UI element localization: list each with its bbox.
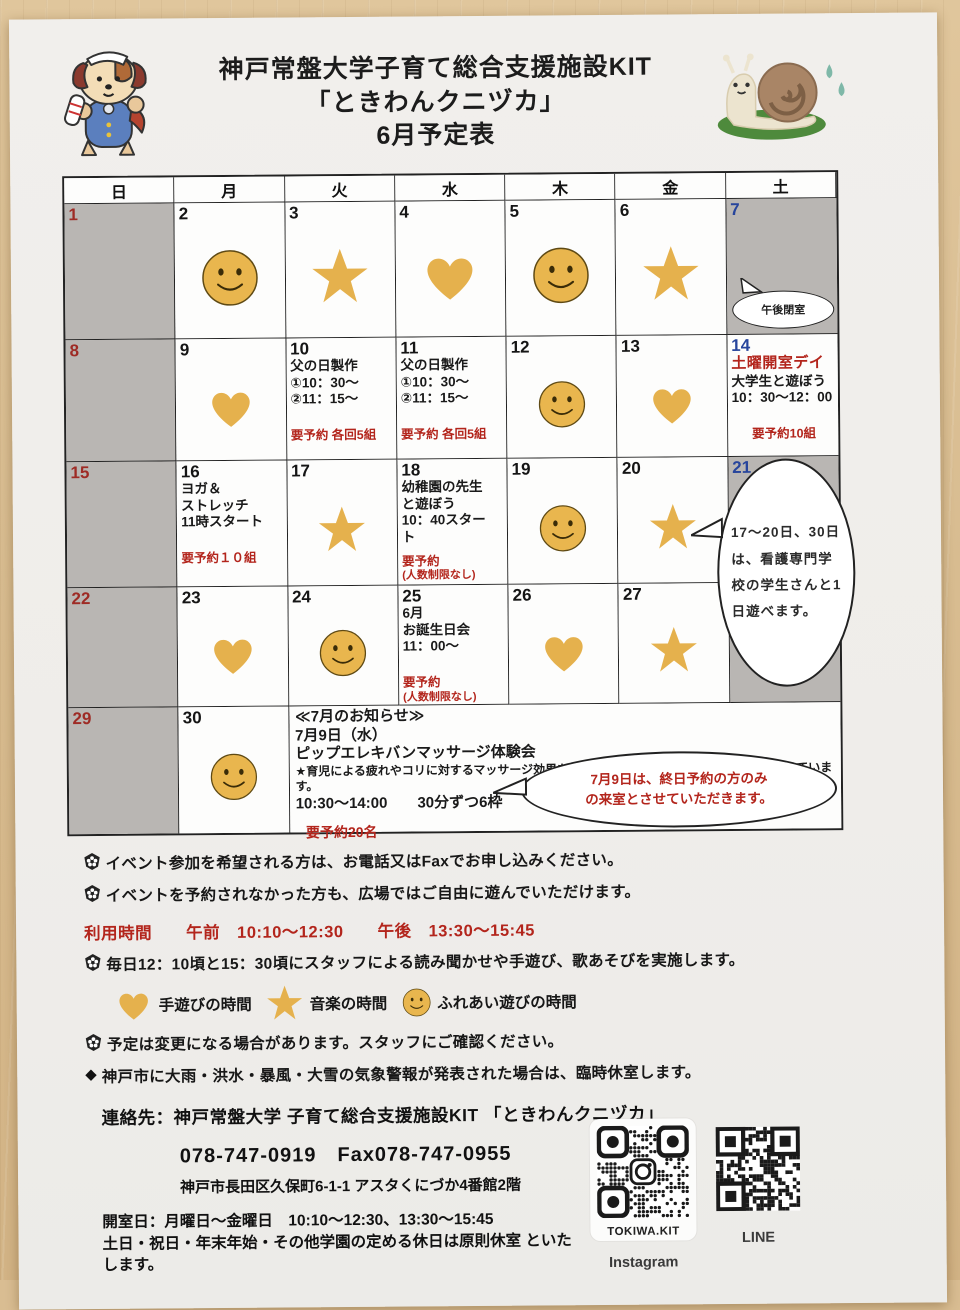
nursing-students-note-bubble: 17～20日、30日は、看護専門学校の学生さんと1日遊べます。 xyxy=(716,458,856,687)
day-number: 30 xyxy=(179,706,288,727)
note-row: 予定は変更になる場合があります。スタッフにご確認ください。 xyxy=(85,1027,915,1057)
icon-legend: 手遊びの時間音楽の時間ふれあい遊びの時間 xyxy=(115,980,915,1024)
calendar-cell-16: 16ヨガ＆ストレッチ11時スタート要予約１０組 xyxy=(177,460,288,587)
day-number: 15 xyxy=(66,461,175,482)
day-number: 9 xyxy=(176,339,285,360)
event-line: ①10：30～ xyxy=(401,374,504,392)
event-line: 要予約 xyxy=(403,675,506,691)
page-title: 神戸常盤大学子育て総合支援施設KIT 「ときわんクニヅカ」 6月予定表 xyxy=(161,50,710,156)
contact-section: 連絡先：神戸常盤大学 子育て総合支援施設KIT 「ときわんクニヅカ」 078-7… xyxy=(101,1098,932,1276)
day-number: 7 xyxy=(726,198,836,219)
activity-icon-box xyxy=(178,606,288,700)
activity-icon-box xyxy=(619,603,729,697)
event-line: 父の日製作 xyxy=(290,358,393,376)
event-text: 6月お誕生日会11：00～要予約(人数制限なし) xyxy=(398,605,508,705)
heart-icon xyxy=(420,249,480,302)
legend-label: 音楽の時間 xyxy=(310,992,388,1015)
nursing-students-note-text: 17～20日、30日は、看護専門学校の学生さんと1日遊べます。 xyxy=(731,520,842,626)
smiley-icon xyxy=(200,247,260,307)
event-line: ②11：15～ xyxy=(290,391,393,409)
weekday-header-木: 木 xyxy=(505,174,615,201)
event-line: ヨガ＆ xyxy=(181,481,284,499)
day-number: 6 xyxy=(616,199,725,220)
day-number: 17 xyxy=(287,460,396,481)
event-line: (人数制限なし) xyxy=(403,690,506,704)
event-line: 要予約１０組 xyxy=(181,551,284,567)
event-line: 6月 xyxy=(402,605,505,623)
page-title-line2: 「ときわんクニヅカ」 xyxy=(161,84,709,122)
smiley-icon xyxy=(531,245,591,305)
july-reservation-bubble: 7月9日は、終日予約の方のみの来室とさせていただきます。 xyxy=(521,750,838,828)
calendar-cell-18: 18幼稚園の先生と遊ぼう10：40スタート要予約(人数制限なし) xyxy=(397,459,508,586)
event-line: 大学生と遊ぼう xyxy=(731,373,835,391)
contact-open-days: 開室日：月曜日～金曜日 10:10～12:30、13:30～15:45 xyxy=(102,1203,932,1232)
smiley-icon xyxy=(401,987,431,1017)
note-text: イベント参加を希望される方は、お電話又はFaxでお申し込みください。 xyxy=(105,848,623,874)
calendar-cell-27: 27 xyxy=(619,583,730,704)
event-line: 要予約 各回5組 xyxy=(291,428,394,444)
contact-name: 連絡先：神戸常盤大学 子育て総合支援施設KIT 「ときわんクニヅカ」 xyxy=(101,1098,931,1130)
calendar-cell-5: 5 xyxy=(506,200,617,337)
line-qr-code xyxy=(716,1126,801,1216)
calendar-cell-11: 11父の日製作①10：30～②11：15～要予約 各回5組 xyxy=(396,337,507,460)
opening-hours-line: 利用時間 午前 10:10～12:30 午後 13:30～15:45 xyxy=(84,914,914,945)
page-title-line1: 神戸常盤大学子育て総合支援施設KIT xyxy=(161,50,709,88)
day-number: 3 xyxy=(285,202,394,223)
note-text: 予定は変更になる場合があります。スタッフにご確認ください。 xyxy=(107,1029,564,1055)
calendar-cell-9: 9 xyxy=(176,338,287,461)
activity-icon-box xyxy=(506,220,616,330)
day-number: 5 xyxy=(506,200,615,221)
note-text: 毎日12：10頃と15：30頃にスタッフによる読み聞かせや手遊び、歌あそびを実施… xyxy=(106,948,744,975)
qr-zone: TOKIWA.KIT Instagram LINE xyxy=(590,1117,801,1271)
paper-sheet: 神戸常盤大学子育て総合支援施設KIT 「ときわんクニヅカ」 6月予定表 xyxy=(9,12,947,1309)
day-number: 18 xyxy=(397,459,506,480)
july-announcement-cell: ≪7月のお知らせ≫7月9日（水）ピップエレキバンマッサージ体験会★育児による疲れ… xyxy=(289,702,841,832)
event-text: 幼稚園の先生と遊ぼう10：40スタート要予約(人数制限なし) xyxy=(397,479,507,584)
june-calendar-grid: 日月火水木金土1234567午後閉室 8910父の日製作①10：30～②11：1… xyxy=(62,170,843,836)
day-number: 22 xyxy=(67,587,176,608)
day-number: 11 xyxy=(396,337,505,358)
instagram-account-label: TOKIWA.KIT xyxy=(597,1225,689,1238)
day-number: 1 xyxy=(64,203,173,224)
calendar-cell-19: 19 xyxy=(508,458,619,585)
event-line: ②11：15～ xyxy=(401,390,504,408)
afternoon-closed-text: 午後閉室 xyxy=(761,301,805,317)
heart-icon xyxy=(115,988,153,1022)
flower-badge-icon xyxy=(84,884,106,907)
smiley-icon xyxy=(318,627,368,677)
weekday-header-土: 土 xyxy=(726,172,836,199)
instagram-label: Instagram xyxy=(591,1254,697,1271)
day-number: 10 xyxy=(286,338,395,359)
note-row: 毎日12：10頃と15：30頃にスタッフによる読み聞かせや手遊び、歌あそびを実施… xyxy=(84,947,914,977)
smiley-icon xyxy=(209,752,259,802)
activity-icon-box xyxy=(617,355,727,451)
event-line: お誕生日会 xyxy=(403,622,506,640)
activity-icon-box xyxy=(508,478,618,578)
day-number: 8 xyxy=(65,339,174,360)
weekday-header-火: 火 xyxy=(285,176,395,203)
event-line: 要予約 各回5組 xyxy=(401,427,504,443)
activity-icon-box xyxy=(285,222,395,332)
day-number: 19 xyxy=(508,458,617,479)
bubble-tail xyxy=(493,777,527,797)
calendar-cell-12: 12 xyxy=(507,336,618,459)
smiley-icon xyxy=(538,503,588,553)
weekday-header-水: 水 xyxy=(395,175,505,202)
heart-icon xyxy=(206,384,256,428)
contact-closed-days: 土日・祝日・年末年始・その他学園の定める休日は原則休室 といたします。 xyxy=(102,1231,582,1277)
calendar-section: 日月火水木金土1234567午後閉室 8910父の日製作①10：30～②11：1… xyxy=(62,170,839,836)
calendar-cell-4: 4 xyxy=(395,201,506,338)
event-line: 父の日製作 xyxy=(400,357,503,375)
calendar-cell-30: 30 xyxy=(179,706,290,833)
event-line: 10：30～12：00 xyxy=(732,390,836,408)
event-text: ヨガ＆ストレッチ11時スタート要予約１０組 xyxy=(177,481,287,568)
day-number: 23 xyxy=(178,586,287,607)
calendar-cell-23: 23 xyxy=(178,586,289,707)
day-number: 24 xyxy=(288,586,397,607)
smiley-icon xyxy=(537,379,587,429)
event-line: 幼稚園の先生 xyxy=(401,479,504,497)
weekday-header-月: 月 xyxy=(174,177,284,204)
calendar-cell-2: 2 xyxy=(175,203,286,340)
activity-icon-box xyxy=(395,221,505,331)
header: 神戸常盤大学子育て総合支援施設KIT 「ときわんクニヅカ」 6月予定表 xyxy=(57,39,848,166)
day-number: 27 xyxy=(619,583,728,604)
event-line: ト xyxy=(402,529,505,547)
calendar-cell-10: 10父の日製作①10：30～②11：15～要予約 各回5組 xyxy=(286,338,397,461)
note-row: イベントを予約されなかった方も、広場ではご自由に遊んでいただけます。 xyxy=(84,878,914,908)
mascot-dog-illustration xyxy=(57,44,162,166)
calendar-cell-17: 17 xyxy=(287,460,398,587)
activity-icon-box xyxy=(179,726,289,827)
activity-icon-box xyxy=(287,480,397,580)
note-text: イベントを予約されなかった方も、広場ではご自由に遊んでいただけます。 xyxy=(106,880,641,906)
heart-icon xyxy=(539,629,589,673)
diamond-bullet-icon: ◆ xyxy=(85,1065,97,1083)
day-number: 12 xyxy=(507,336,616,357)
day-number: 4 xyxy=(395,201,504,222)
legend-item: 音楽の時間 xyxy=(266,984,388,1023)
flower-badge-icon xyxy=(83,852,105,875)
event-line: 11：00～ xyxy=(403,638,506,656)
legend-label: ふれあい遊びの時間 xyxy=(437,990,577,1013)
flower-badge-icon xyxy=(85,1033,107,1056)
contact-phone: 078-747-0919 Fax078-747-0955 xyxy=(180,1133,932,1168)
instagram-qr-code xyxy=(597,1125,690,1223)
day-number: 14 xyxy=(727,334,837,355)
star-icon xyxy=(317,504,367,554)
star-icon xyxy=(641,244,701,304)
activity-icon-box xyxy=(507,356,617,452)
calendar-cell-14: 14土曜開室デイ大学生と遊ぼう10：30～12：00要予約10組 xyxy=(727,334,838,457)
event-text: 土曜開室デイ大学生と遊ぼう10：30～12：00要予約10組 xyxy=(727,354,838,442)
legend-item: 手遊びの時間 xyxy=(115,987,252,1022)
star-icon xyxy=(266,984,304,1022)
event-line: ストレッチ xyxy=(181,497,284,515)
notes-section: イベント参加を希望される方は、お電話又はFaxでお申し込みください。 イベントを… xyxy=(83,846,915,1088)
calendar-cell-24: 24 xyxy=(288,586,399,707)
day-number: 16 xyxy=(177,461,286,482)
calendar-cell-8: 8 xyxy=(65,339,176,462)
july-reservation-text: 7月9日は、終日予約の方のみの来室とさせていただきます。 xyxy=(585,768,773,810)
day-number: 26 xyxy=(509,584,618,605)
line-label: LINE xyxy=(716,1229,800,1246)
bubble-tail xyxy=(691,517,723,539)
star-icon xyxy=(649,625,699,675)
mascot-snail-illustration xyxy=(709,52,848,148)
announcement-line: 要予約20名 xyxy=(306,820,836,842)
event-line: 11時スタート xyxy=(181,514,284,532)
activity-icon-box xyxy=(288,606,398,700)
activity-icon-box xyxy=(175,223,285,333)
day-number: 20 xyxy=(618,457,727,478)
calendar-cell-1: 1 xyxy=(64,203,175,340)
note-row: イベント参加を希望される方は、お電話又はFaxでお申し込みください。 xyxy=(83,846,913,876)
calendar-cell-3: 3 xyxy=(285,202,396,339)
calendar-cell-29: 29 xyxy=(68,707,179,834)
afternoon-closed-bubble: 午後閉室 xyxy=(732,290,834,329)
event-text: 父の日製作①10：30～②11：15～要予約 各回5組 xyxy=(396,357,506,444)
event-line: ①10：30～ xyxy=(290,374,393,392)
day-number: 13 xyxy=(617,335,726,356)
calendar-cell-7: 7午後閉室 xyxy=(726,198,837,335)
calendar-cell-6: 6 xyxy=(616,199,727,336)
legend-item: ふれあい遊びの時間 xyxy=(401,986,577,1017)
legend-label: 手遊びの時間 xyxy=(159,993,252,1016)
contact-address: 神戸市長田区久保町6-1-1 アスタくにづか4番館2階 xyxy=(180,1170,932,1197)
calendar-cell-26: 26 xyxy=(509,584,620,705)
calendar-cell-15: 15 xyxy=(66,461,177,588)
calendar-cell-22: 22 xyxy=(67,587,178,708)
bubble-tail xyxy=(739,278,765,294)
note-row: ◆ 神戸市に大雨・洪水・暴風・大雪の気象警報が発表された場合は、臨時休室します。 xyxy=(85,1059,915,1088)
activity-icon-box xyxy=(509,604,619,698)
day-number: 25 xyxy=(398,585,507,606)
instagram-qr-card: TOKIWA.KIT xyxy=(590,1118,697,1241)
calendar-cell-25: 256月お誕生日会11：00～要予約(人数制限なし) xyxy=(398,585,509,706)
day-number: 2 xyxy=(175,203,284,224)
heart-icon xyxy=(208,631,258,675)
activity-icon-box xyxy=(176,359,286,455)
heart-icon xyxy=(647,381,697,425)
weekday-header-日: 日 xyxy=(64,177,174,204)
flower-badge-icon xyxy=(84,953,106,976)
event-text: 父の日製作①10：30～②11：15～要予約 各回5組 xyxy=(286,358,396,445)
weekday-header-金: 金 xyxy=(616,173,726,200)
event-line: 土曜開室デイ xyxy=(731,354,835,373)
activity-icon-box xyxy=(616,219,726,329)
page-title-line3: 6月予定表 xyxy=(162,118,710,156)
note-text: 神戸市に大雨・洪水・暴風・大雪の気象警報が発表された場合は、臨時休室します。 xyxy=(102,1060,701,1087)
star-icon xyxy=(310,246,370,306)
event-line: (人数制限なし) xyxy=(402,569,505,583)
event-line: 要予約10組 xyxy=(732,426,836,442)
calendar-cell-13: 13 xyxy=(617,335,728,458)
event-line: 要予約 xyxy=(402,554,505,570)
event-line: と遊ぼう xyxy=(402,496,505,514)
event-line: 10：40スター xyxy=(402,512,505,530)
day-number: 29 xyxy=(68,707,177,728)
